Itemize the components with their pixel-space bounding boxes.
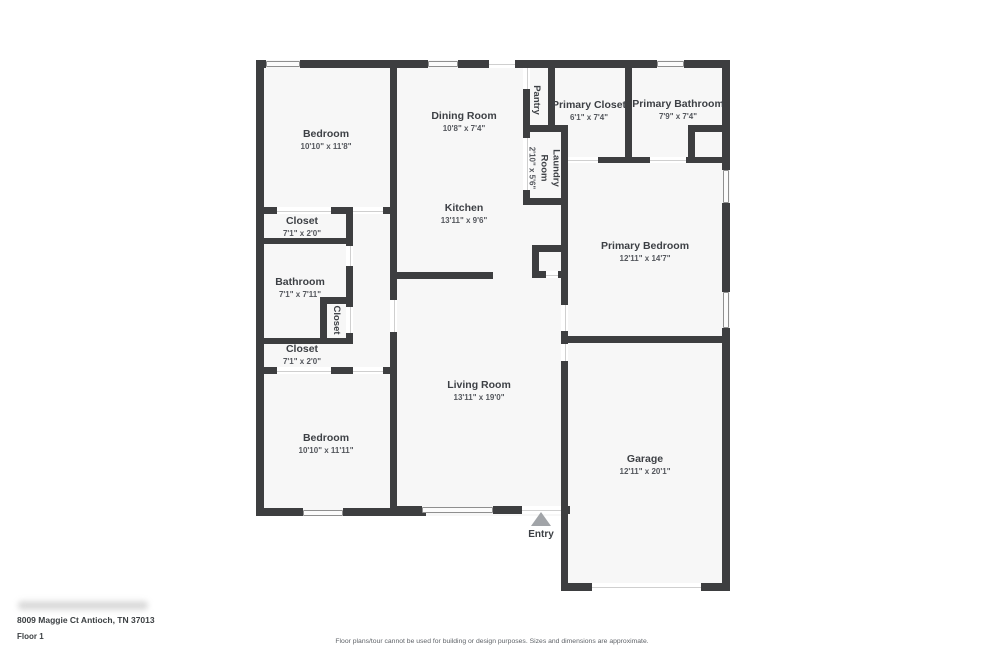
- room-dims: 10'8" x 7'4": [431, 124, 496, 134]
- window: [723, 170, 729, 203]
- room-name: Pantry: [530, 85, 542, 115]
- wall: [390, 272, 493, 279]
- room-name: Closet: [283, 343, 321, 357]
- door-opening: [546, 271, 558, 278]
- room-name: Primary Closet: [552, 99, 626, 113]
- room-label-kitchen: Kitchen 13'11" x 9'6": [441, 202, 488, 226]
- room-dims: 7'1" x 2'0": [283, 229, 321, 239]
- wall: [561, 125, 568, 305]
- wall: [256, 60, 264, 516]
- floorplan-page: Bedroom 10'10" x 11'8" Dining Room 10'8"…: [0, 0, 984, 656]
- wall: [493, 506, 522, 514]
- door-opening: [390, 300, 397, 332]
- room-label-primary-bathroom: Primary Bathroom 7'9" x 7'4": [632, 98, 724, 122]
- window: [723, 292, 729, 328]
- room-label-bedroom-2: Bedroom 10'10" x 11'11": [299, 432, 354, 456]
- room-name: Bathroom: [275, 276, 325, 290]
- wall: [300, 60, 428, 68]
- room-dims: 13'11" x 9'6": [441, 216, 488, 226]
- room-dims: 10'10" x 11'8": [301, 142, 352, 152]
- room-dims: 7'1" x 2'0": [283, 357, 321, 367]
- room-name: Laundry Room: [537, 142, 562, 194]
- room-name: Kitchen: [441, 202, 488, 216]
- room-label-bathroom: Bathroom 7'1" x 7'11": [275, 276, 325, 300]
- wall: [331, 367, 353, 374]
- room-label-living-room: Living Room 13'11" x 19'0": [447, 379, 511, 403]
- room-name: Primary Bathroom: [632, 98, 724, 112]
- entry-label: Entry: [528, 529, 554, 540]
- door-opening: [346, 246, 353, 266]
- room-name: Living Room: [447, 379, 511, 393]
- room-name: Closet: [330, 305, 342, 334]
- room-label-primary-bedroom: Primary Bedroom 12'11" x 14'7": [601, 240, 689, 264]
- door-opening: [277, 207, 331, 214]
- wall: [515, 60, 657, 68]
- wall: [561, 361, 568, 591]
- room-dims: 12'11" x 14'7": [601, 254, 689, 264]
- door-opening: [650, 157, 686, 163]
- door-opening: [277, 367, 331, 374]
- room-label-laundry-room: Laundry Room 2'10" x 5'6": [526, 142, 561, 194]
- wall: [561, 336, 730, 343]
- redacted-text-blur: [18, 601, 148, 610]
- disclaimer-text: Floor plans/tour cannot be used for buil…: [0, 638, 984, 645]
- room-name: Closet: [283, 215, 321, 229]
- wall: [532, 245, 539, 278]
- wall: [561, 331, 568, 344]
- room-name: Bedroom: [301, 128, 352, 142]
- wall: [688, 125, 695, 163]
- wall: [598, 157, 650, 163]
- room-label-hall-closet: Closet: [330, 305, 342, 334]
- door-opening: [561, 305, 568, 331]
- entry-arrow-icon: [531, 512, 551, 526]
- room-name: Garage: [620, 453, 671, 467]
- door-opening: [353, 207, 383, 214]
- room-label-bedroom-1: Bedroom 10'10" x 11'8": [301, 128, 352, 152]
- door-opening: [568, 157, 598, 163]
- wall: [256, 367, 277, 374]
- door-opening: [489, 60, 515, 68]
- wall: [256, 508, 303, 516]
- window: [422, 507, 493, 513]
- wall: [390, 332, 397, 508]
- room-dims: 7'1" x 7'11": [275, 290, 325, 300]
- door-opening: [561, 344, 568, 361]
- window: [303, 510, 343, 516]
- room-label-closet-1: Closet 7'1" x 2'0": [283, 215, 321, 239]
- door-opening: [353, 367, 383, 374]
- room-label-garage: Garage 12'11" x 20'1": [620, 453, 671, 477]
- wall: [722, 328, 730, 591]
- wall: [256, 207, 277, 214]
- window: [428, 61, 458, 67]
- room-dims: 2'10" x 5'6": [526, 142, 536, 194]
- room-name: Primary Bedroom: [601, 240, 689, 254]
- garage-door-opening: [592, 583, 701, 591]
- room-label-closet-2: Closet 7'1" x 2'0": [283, 343, 321, 367]
- wall: [320, 297, 327, 344]
- room-dims: 12'11" x 20'1": [620, 467, 671, 477]
- room-name: Dining Room: [431, 110, 496, 124]
- window: [266, 61, 300, 67]
- room-dims: 6'1" x 7'4": [552, 113, 626, 123]
- room-name: Bedroom: [299, 432, 354, 446]
- room-label-primary-closet: Primary Closet 6'1" x 7'4": [552, 99, 626, 123]
- wall: [390, 68, 397, 300]
- door-opening: [346, 307, 353, 333]
- wall: [346, 207, 353, 246]
- room-label-pantry: Pantry: [530, 85, 542, 115]
- wall: [458, 60, 489, 68]
- window: [657, 61, 684, 67]
- room-dims: 7'9" x 7'4": [632, 112, 724, 122]
- room-dims: 13'11" x 19'0": [447, 393, 511, 403]
- wall: [722, 203, 730, 292]
- wall: [346, 333, 353, 344]
- room-label-dining-room: Dining Room 10'8" x 7'4": [431, 110, 496, 134]
- address-text: 8009 Maggie Ct Antioch, TN 37013: [17, 615, 155, 625]
- wall: [346, 266, 353, 307]
- room-dims: 10'10" x 11'11": [299, 446, 354, 456]
